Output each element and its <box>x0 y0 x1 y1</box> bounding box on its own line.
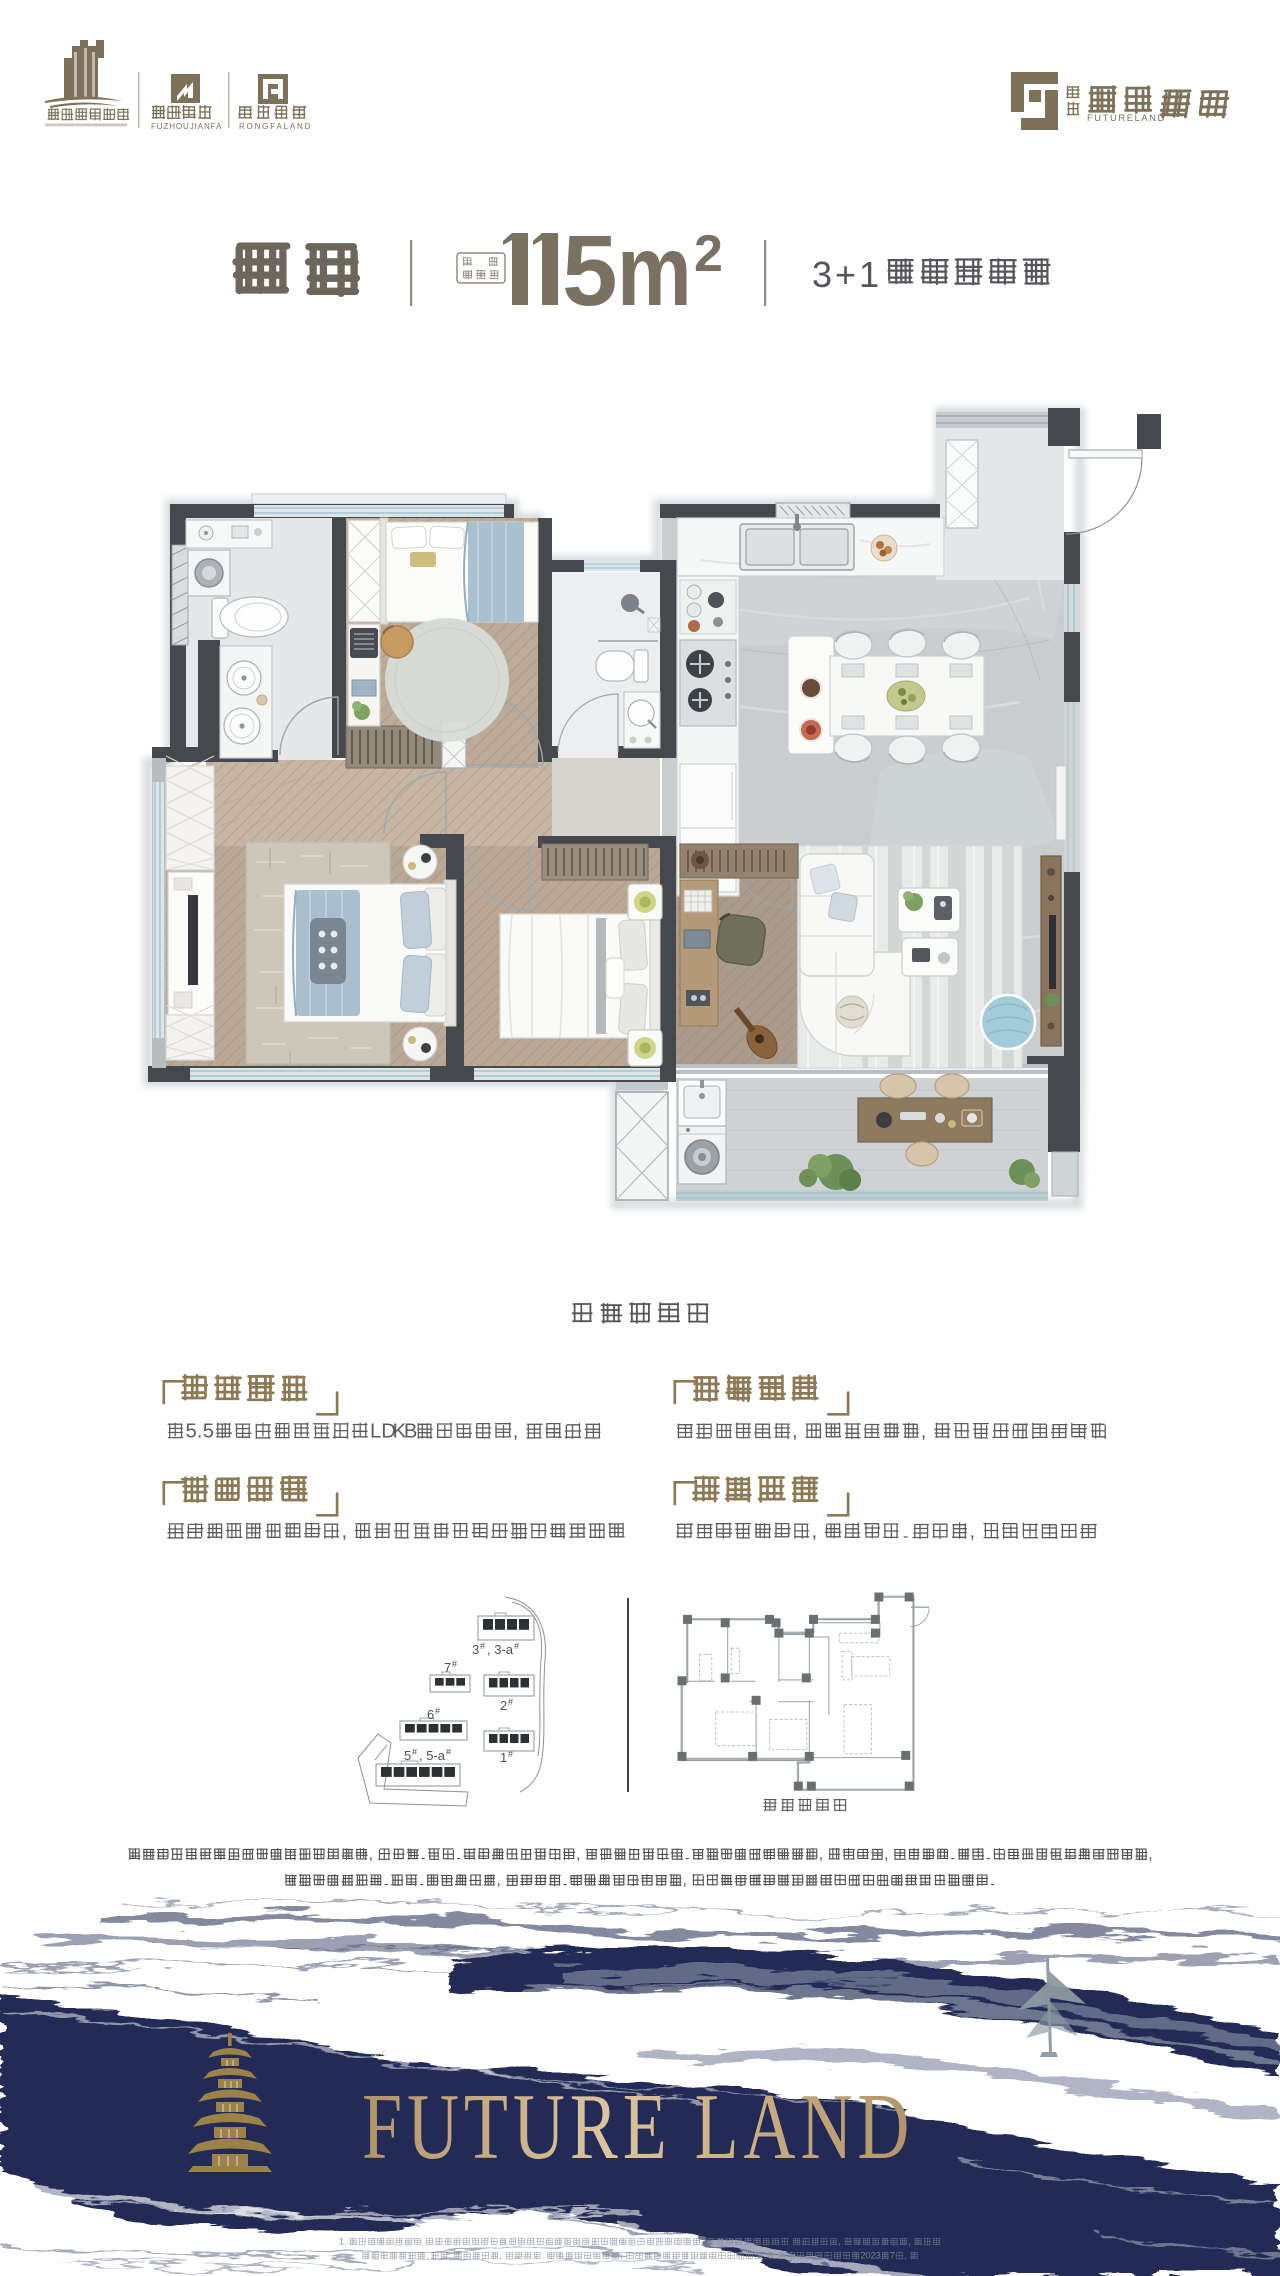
svg-text:FUZHOUJIANFA: FUZHOUJIANFA <box>151 122 222 131</box>
svg-text:3+1: 3+1 <box>812 254 882 295</box>
svg-text:,: , <box>497 1873 501 1889</box>
svg-text:,: , <box>513 1420 519 1442</box>
svg-text:,: , <box>819 1847 823 1863</box>
svg-text:2: 2 <box>694 225 723 283</box>
svg-text:1: 1 <box>339 2237 344 2248</box>
svg-text:6: 6 <box>427 1707 434 1722</box>
svg-text:,: , <box>884 1847 888 1863</box>
svg-text:,: , <box>499 2251 502 2262</box>
svg-text:#: # <box>412 1747 417 1757</box>
svg-text:#: # <box>508 1697 513 1707</box>
svg-text:RONGFALAND: RONGFALAND <box>239 122 312 131</box>
svg-text:5: 5 <box>404 1748 411 1763</box>
svg-text:#: # <box>508 1749 513 1759</box>
svg-text:.: . <box>197 1420 203 1442</box>
svg-text:#: # <box>480 1641 485 1651</box>
svg-text:#: # <box>435 1706 440 1716</box>
svg-text:, 3-a: , 3-a <box>487 1642 514 1657</box>
svg-text:7: 7 <box>444 1660 451 1675</box>
svg-text:L: L <box>370 1420 381 1442</box>
svg-text:,: , <box>812 1520 818 1542</box>
svg-text:3: 3 <box>876 2251 881 2262</box>
svg-text:,: , <box>576 1847 580 1863</box>
svg-text:,: , <box>904 2251 907 2262</box>
svg-text:3: 3 <box>472 1642 479 1657</box>
svg-text:,: , <box>620 2251 623 2262</box>
svg-text:,: , <box>342 1520 348 1542</box>
svg-text:,: , <box>792 1420 798 1442</box>
svg-text:5: 5 <box>562 215 618 327</box>
svg-text:5: 5 <box>768 2251 773 2262</box>
svg-text:B: B <box>404 1420 418 1442</box>
svg-text:7: 7 <box>890 2251 895 2262</box>
svg-text:,: , <box>921 1420 927 1442</box>
svg-text:,: , <box>908 2237 911 2248</box>
svg-text:5: 5 <box>186 1420 197 1442</box>
svg-text:,: , <box>701 2237 704 2248</box>
svg-text:5: 5 <box>203 1420 214 1442</box>
svg-text:,: , <box>838 2237 841 2248</box>
svg-text:1: 1 <box>500 1750 507 1765</box>
svg-text:2: 2 <box>500 1698 507 1713</box>
svg-text:, 5-a: , 5-a <box>419 1748 446 1763</box>
svg-text:#: # <box>446 1747 451 1757</box>
svg-text:m: m <box>617 214 692 327</box>
svg-text:,: , <box>369 1847 373 1863</box>
svg-text:#: # <box>452 1659 457 1669</box>
svg-text:FUTURE LAND: FUTURE LAND <box>362 2075 914 2180</box>
svg-text:,: , <box>970 1520 976 1542</box>
svg-text:,: , <box>683 1873 687 1889</box>
svg-text:#: # <box>514 1641 519 1651</box>
svg-text:,: , <box>1148 1847 1152 1863</box>
svg-text:FUTURELAND: FUTURELAND <box>1087 113 1166 124</box>
